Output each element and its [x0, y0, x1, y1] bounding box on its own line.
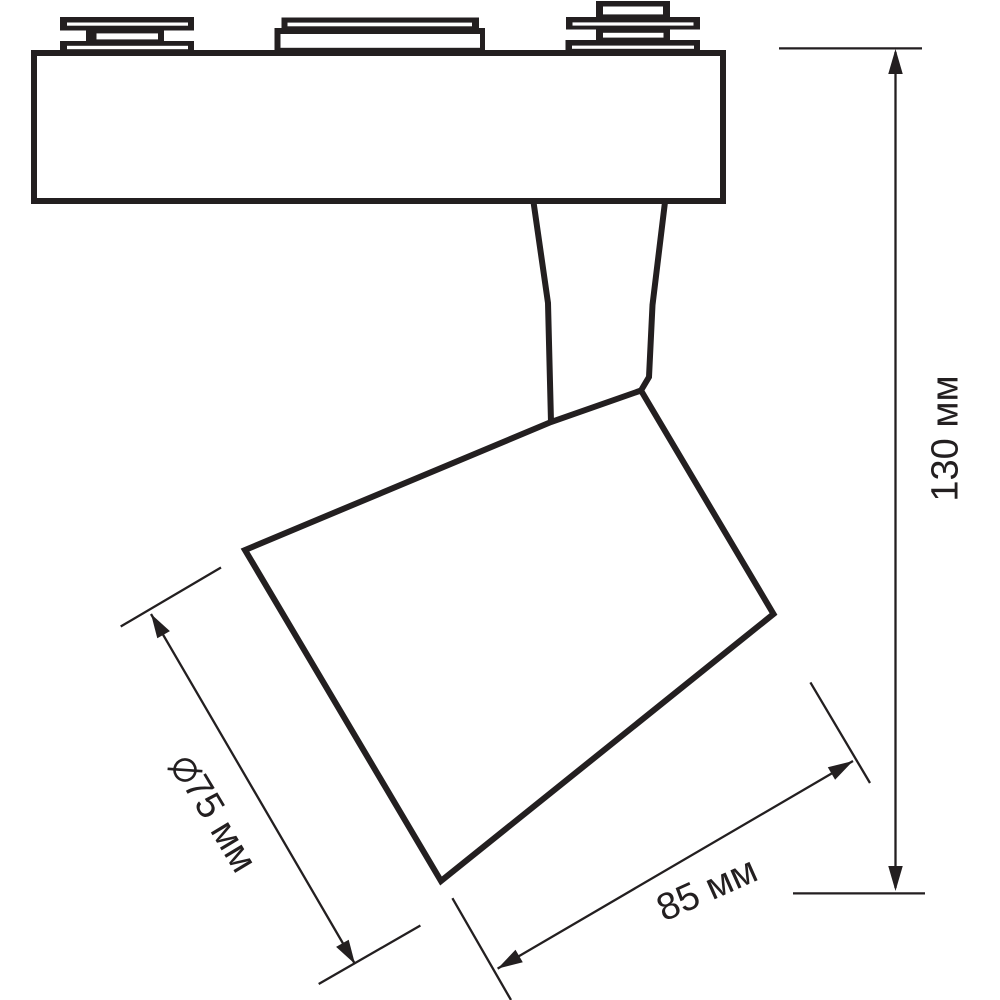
- svg-text:130 мм: 130 мм: [925, 375, 967, 501]
